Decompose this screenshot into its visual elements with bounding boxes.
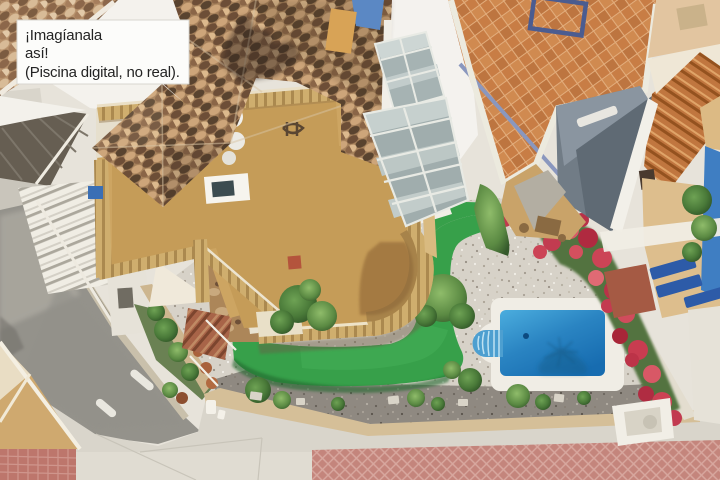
svg-text:(Piscina digital, no real).: (Piscina digital, no real).	[25, 64, 180, 81]
svg-text:¡Imagíanala: ¡Imagíanala	[25, 27, 103, 44]
svg-text:así!: así!	[25, 45, 48, 62]
